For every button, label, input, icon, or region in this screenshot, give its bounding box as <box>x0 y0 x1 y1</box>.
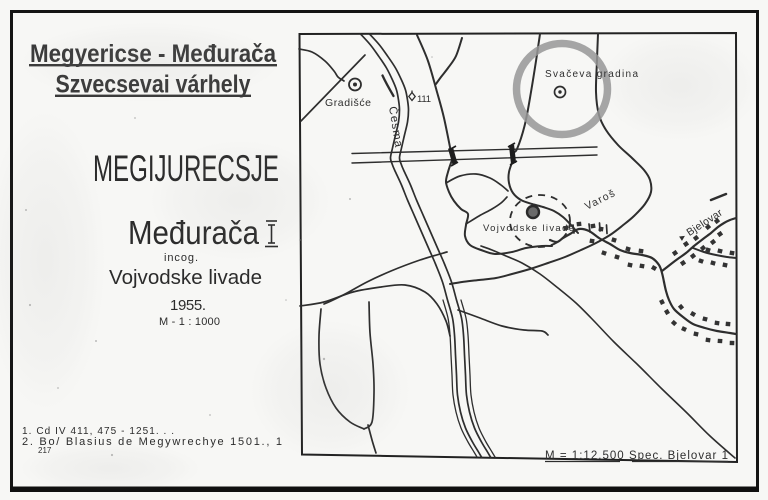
svg-text:Gradišće: Gradišće <box>325 97 371 109</box>
svg-text:111: 111 <box>417 94 431 105</box>
svg-text:M - 1 : 1000: M - 1 : 1000 <box>159 316 220 328</box>
svg-text:Vojvodske livade: Vojvodske livade <box>109 267 262 289</box>
svg-text:1955.: 1955. <box>170 297 206 314</box>
svg-text:Vojvodske livade: Vojvodske livade <box>483 223 574 234</box>
svg-text:M = 1:12.500 Spec. Bjelovar: M = 1:12.500 Spec. Bjelovar 1 <box>545 450 728 462</box>
svg-text:incog.: incog. <box>164 252 198 264</box>
